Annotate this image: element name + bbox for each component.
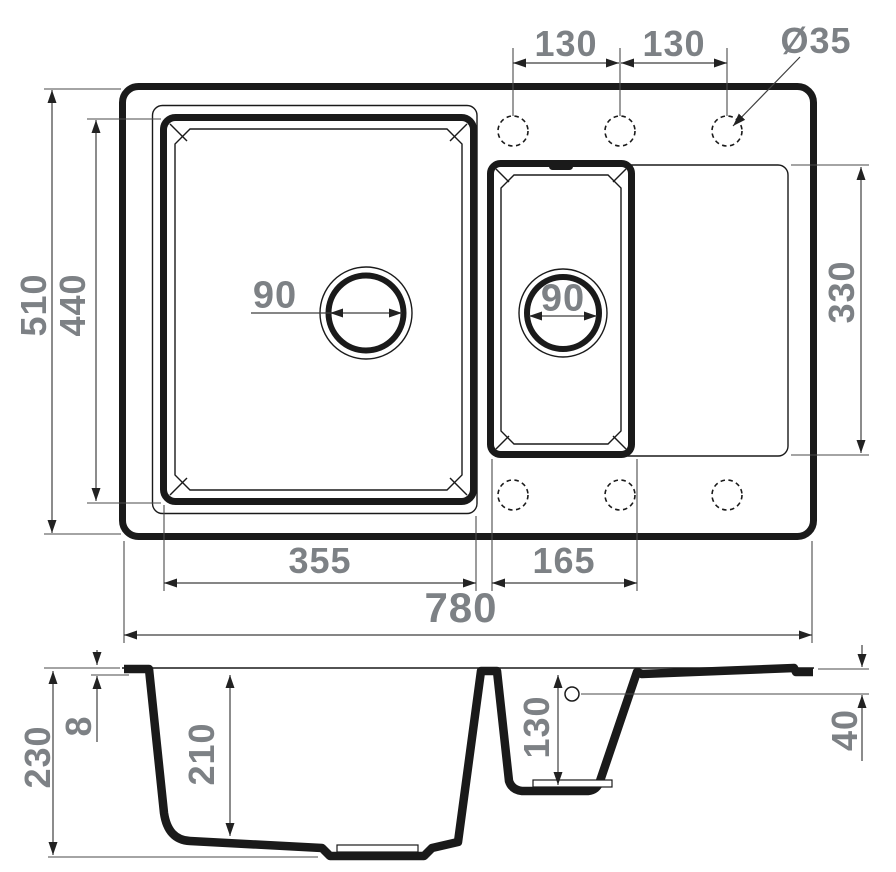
dim-label-drainboard-drop: 40 (824, 709, 865, 751)
dim-small-bowl-section-depth: 130 (516, 675, 558, 785)
main-drain-fitting (337, 845, 418, 852)
dim-label-small-bowl-section-depth: 130 (516, 695, 557, 758)
dim-label-hole-diameter: Ø35 (780, 20, 851, 61)
dim-label-small-drain: 90 (541, 278, 585, 320)
dim-label-hole-spacing-right: 130 (642, 23, 705, 64)
dim-label-main-bowl-width: 355 (288, 540, 351, 581)
dim-rim-thickness: 8 (58, 650, 129, 742)
dim-overall-width: 780 (124, 541, 812, 643)
small-bowl-overflow-slot (549, 163, 573, 170)
dim-main-bowl-section-depth: 210 (181, 675, 230, 836)
dim-label-overall-height: 230 (17, 725, 58, 788)
section-view-dimensions: 230 8 210 130 40 (17, 645, 869, 857)
dim-label-main-bowl-section-depth: 210 (181, 722, 222, 785)
drawing-canvas: 130 130 Ø35 510 440 330 (0, 0, 896, 872)
dim-label-small-bowl-width: 165 (532, 540, 595, 581)
dim-label-main-drain: 90 (253, 275, 297, 317)
dim-label-overall-depth: 510 (13, 273, 54, 336)
top-view (123, 87, 814, 537)
dim-label-overall-width: 780 (424, 584, 497, 631)
section-profile (124, 668, 813, 856)
dim-label-right-section-depth: 330 (821, 260, 862, 323)
dim-label-main-bowl-depth: 440 (52, 273, 93, 336)
overflow-hole (565, 687, 579, 701)
dim-label-hole-spacing-left: 130 (534, 23, 597, 64)
main-bowl-outline (164, 118, 474, 502)
dim-label-rim-thickness: 8 (58, 715, 99, 736)
sink-technical-drawing: 130 130 Ø35 510 440 330 (0, 0, 896, 872)
small-drain-fitting (533, 780, 612, 787)
section-view (122, 668, 814, 856)
